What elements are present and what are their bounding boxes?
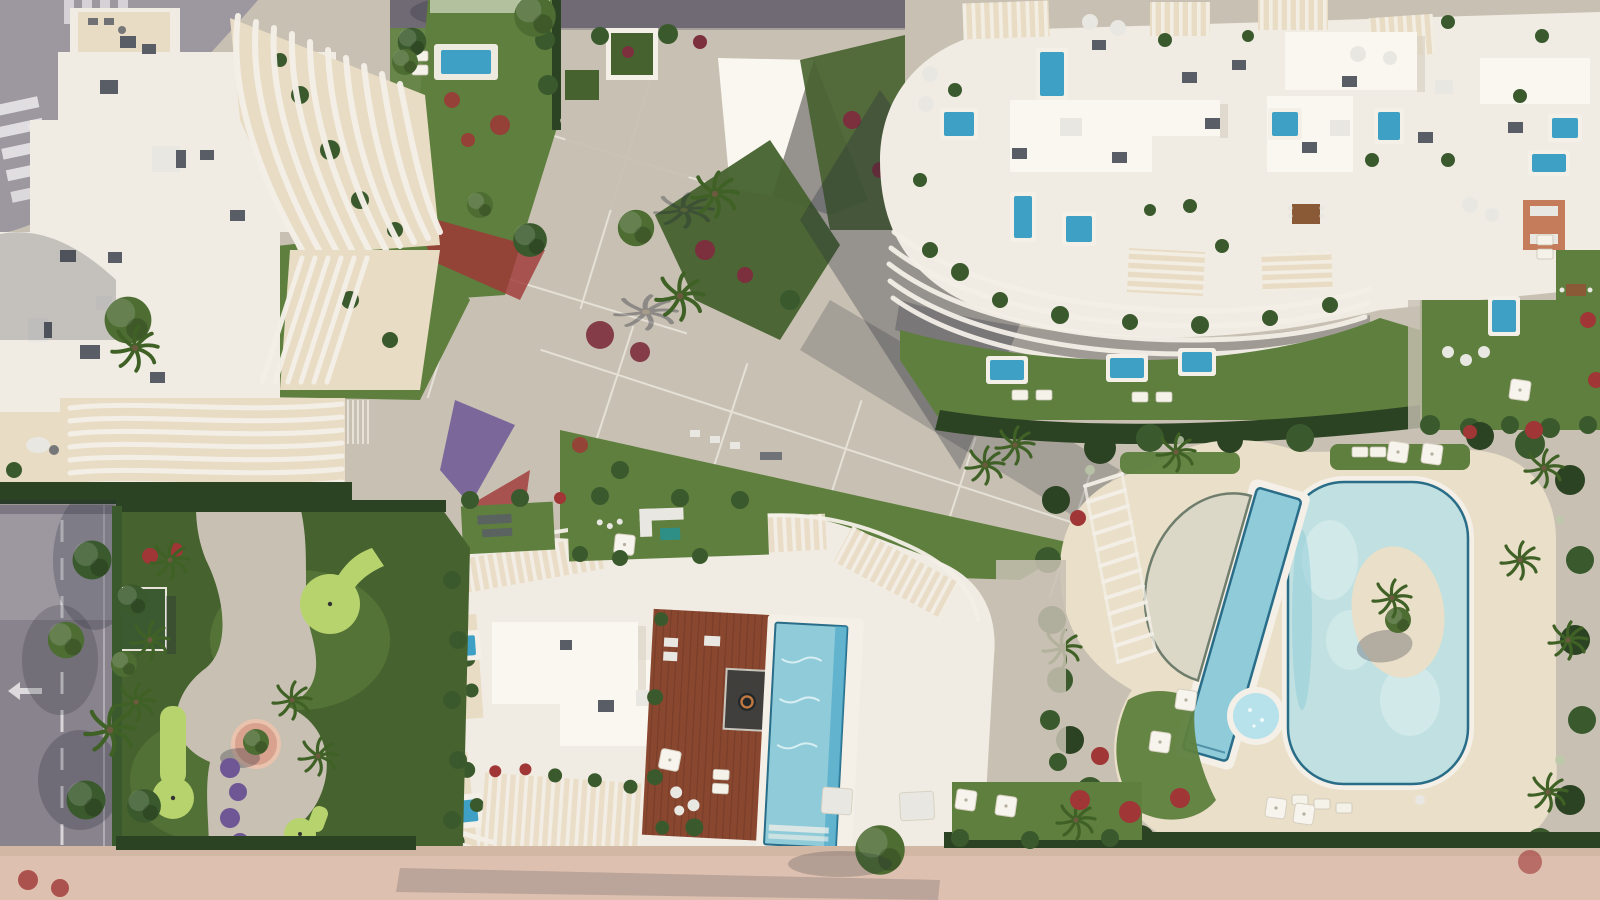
building-a-balconies-mid	[262, 250, 440, 390]
lagoon-pool	[1282, 476, 1474, 790]
jacuzzi	[1227, 687, 1285, 745]
aerial-render	[0, 0, 1600, 900]
promenade-hedge-left	[116, 836, 416, 850]
infinity-pool	[756, 614, 864, 857]
aerial-site-plan	[0, 0, 1600, 900]
wood-deck	[640, 609, 776, 841]
minigolf-garden	[111, 500, 470, 880]
garden-north-pool	[434, 44, 498, 80]
building-a-balconies-south	[60, 398, 345, 492]
